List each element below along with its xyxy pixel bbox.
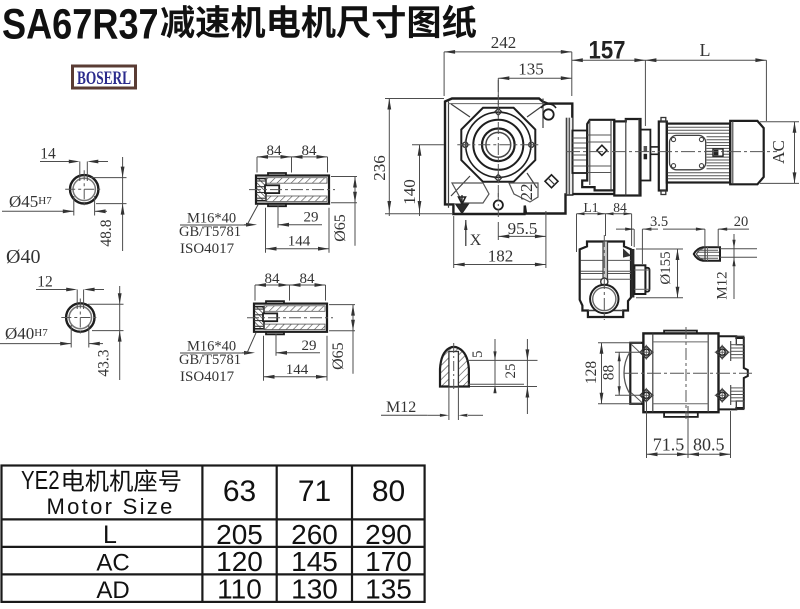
svg-text:182: 182 [488, 247, 514, 266]
svg-text:Motor Size: Motor Size [47, 494, 175, 519]
svg-text:14: 14 [40, 146, 56, 163]
svg-text:88: 88 [601, 365, 618, 381]
svg-text:84: 84 [300, 271, 316, 287]
svg-text:95.5: 95.5 [508, 219, 538, 238]
svg-text:170: 170 [365, 546, 412, 577]
svg-text:29: 29 [304, 210, 319, 226]
svg-text:110: 110 [217, 574, 262, 605]
svg-text:Ø155: Ø155 [658, 251, 674, 284]
svg-text:YE2: YE2 [21, 466, 60, 495]
svg-text:L1: L1 [584, 200, 599, 215]
svg-text:242: 242 [491, 33, 517, 52]
svg-text:144: 144 [288, 234, 311, 250]
svg-text:ISO4017: ISO4017 [180, 241, 235, 257]
svg-text:128: 128 [583, 361, 600, 385]
svg-text:X: X [470, 232, 482, 249]
svg-text:80.5: 80.5 [693, 434, 725, 454]
svg-text:25: 25 [503, 364, 519, 379]
svg-text:AC: AC [96, 550, 129, 577]
svg-text:236: 236 [370, 155, 389, 181]
svg-text:5: 5 [470, 350, 486, 358]
svg-text:GB/T5781: GB/T5781 [179, 224, 241, 240]
svg-text:80: 80 [372, 475, 405, 508]
svg-text:84: 84 [265, 271, 281, 287]
svg-text:GB/T5781: GB/T5781 [179, 352, 241, 368]
svg-text:BOSERL: BOSERL [77, 68, 131, 89]
svg-text:130: 130 [291, 574, 338, 605]
svg-text:145: 145 [291, 546, 338, 577]
svg-text:20: 20 [734, 214, 749, 230]
svg-text:ISO4017: ISO4017 [180, 369, 235, 385]
svg-text:Ø65: Ø65 [330, 342, 347, 370]
svg-text:Ø65: Ø65 [332, 214, 349, 242]
svg-text:22: 22 [517, 184, 536, 201]
svg-text:140: 140 [400, 179, 419, 205]
svg-text:12: 12 [37, 274, 53, 291]
svg-text:71: 71 [298, 475, 331, 508]
svg-text:AC: AC [769, 140, 788, 164]
svg-text:L: L [700, 40, 711, 60]
svg-text:135: 135 [518, 60, 544, 79]
svg-text:84: 84 [613, 200, 627, 215]
svg-text:144: 144 [286, 362, 309, 378]
svg-text:M12: M12 [386, 399, 416, 416]
svg-text:3.5: 3.5 [650, 214, 668, 230]
svg-text:48.8: 48.8 [98, 219, 115, 246]
svg-text:Ø40: Ø40 [6, 246, 40, 268]
svg-text:43.3: 43.3 [96, 349, 113, 376]
svg-text:29: 29 [302, 338, 317, 354]
svg-text:L: L [103, 521, 117, 549]
svg-text:71.5: 71.5 [653, 434, 685, 454]
svg-text:157: 157 [589, 37, 626, 65]
svg-text:135: 135 [365, 574, 412, 605]
svg-text:84: 84 [302, 143, 318, 159]
svg-text:SA67R37: SA67R37 [2, 1, 159, 48]
svg-text:63: 63 [223, 475, 256, 508]
svg-text:84: 84 [267, 143, 283, 159]
svg-text:M12: M12 [715, 271, 731, 299]
svg-text:AD: AD [96, 577, 129, 604]
svg-text:120: 120 [216, 546, 263, 577]
